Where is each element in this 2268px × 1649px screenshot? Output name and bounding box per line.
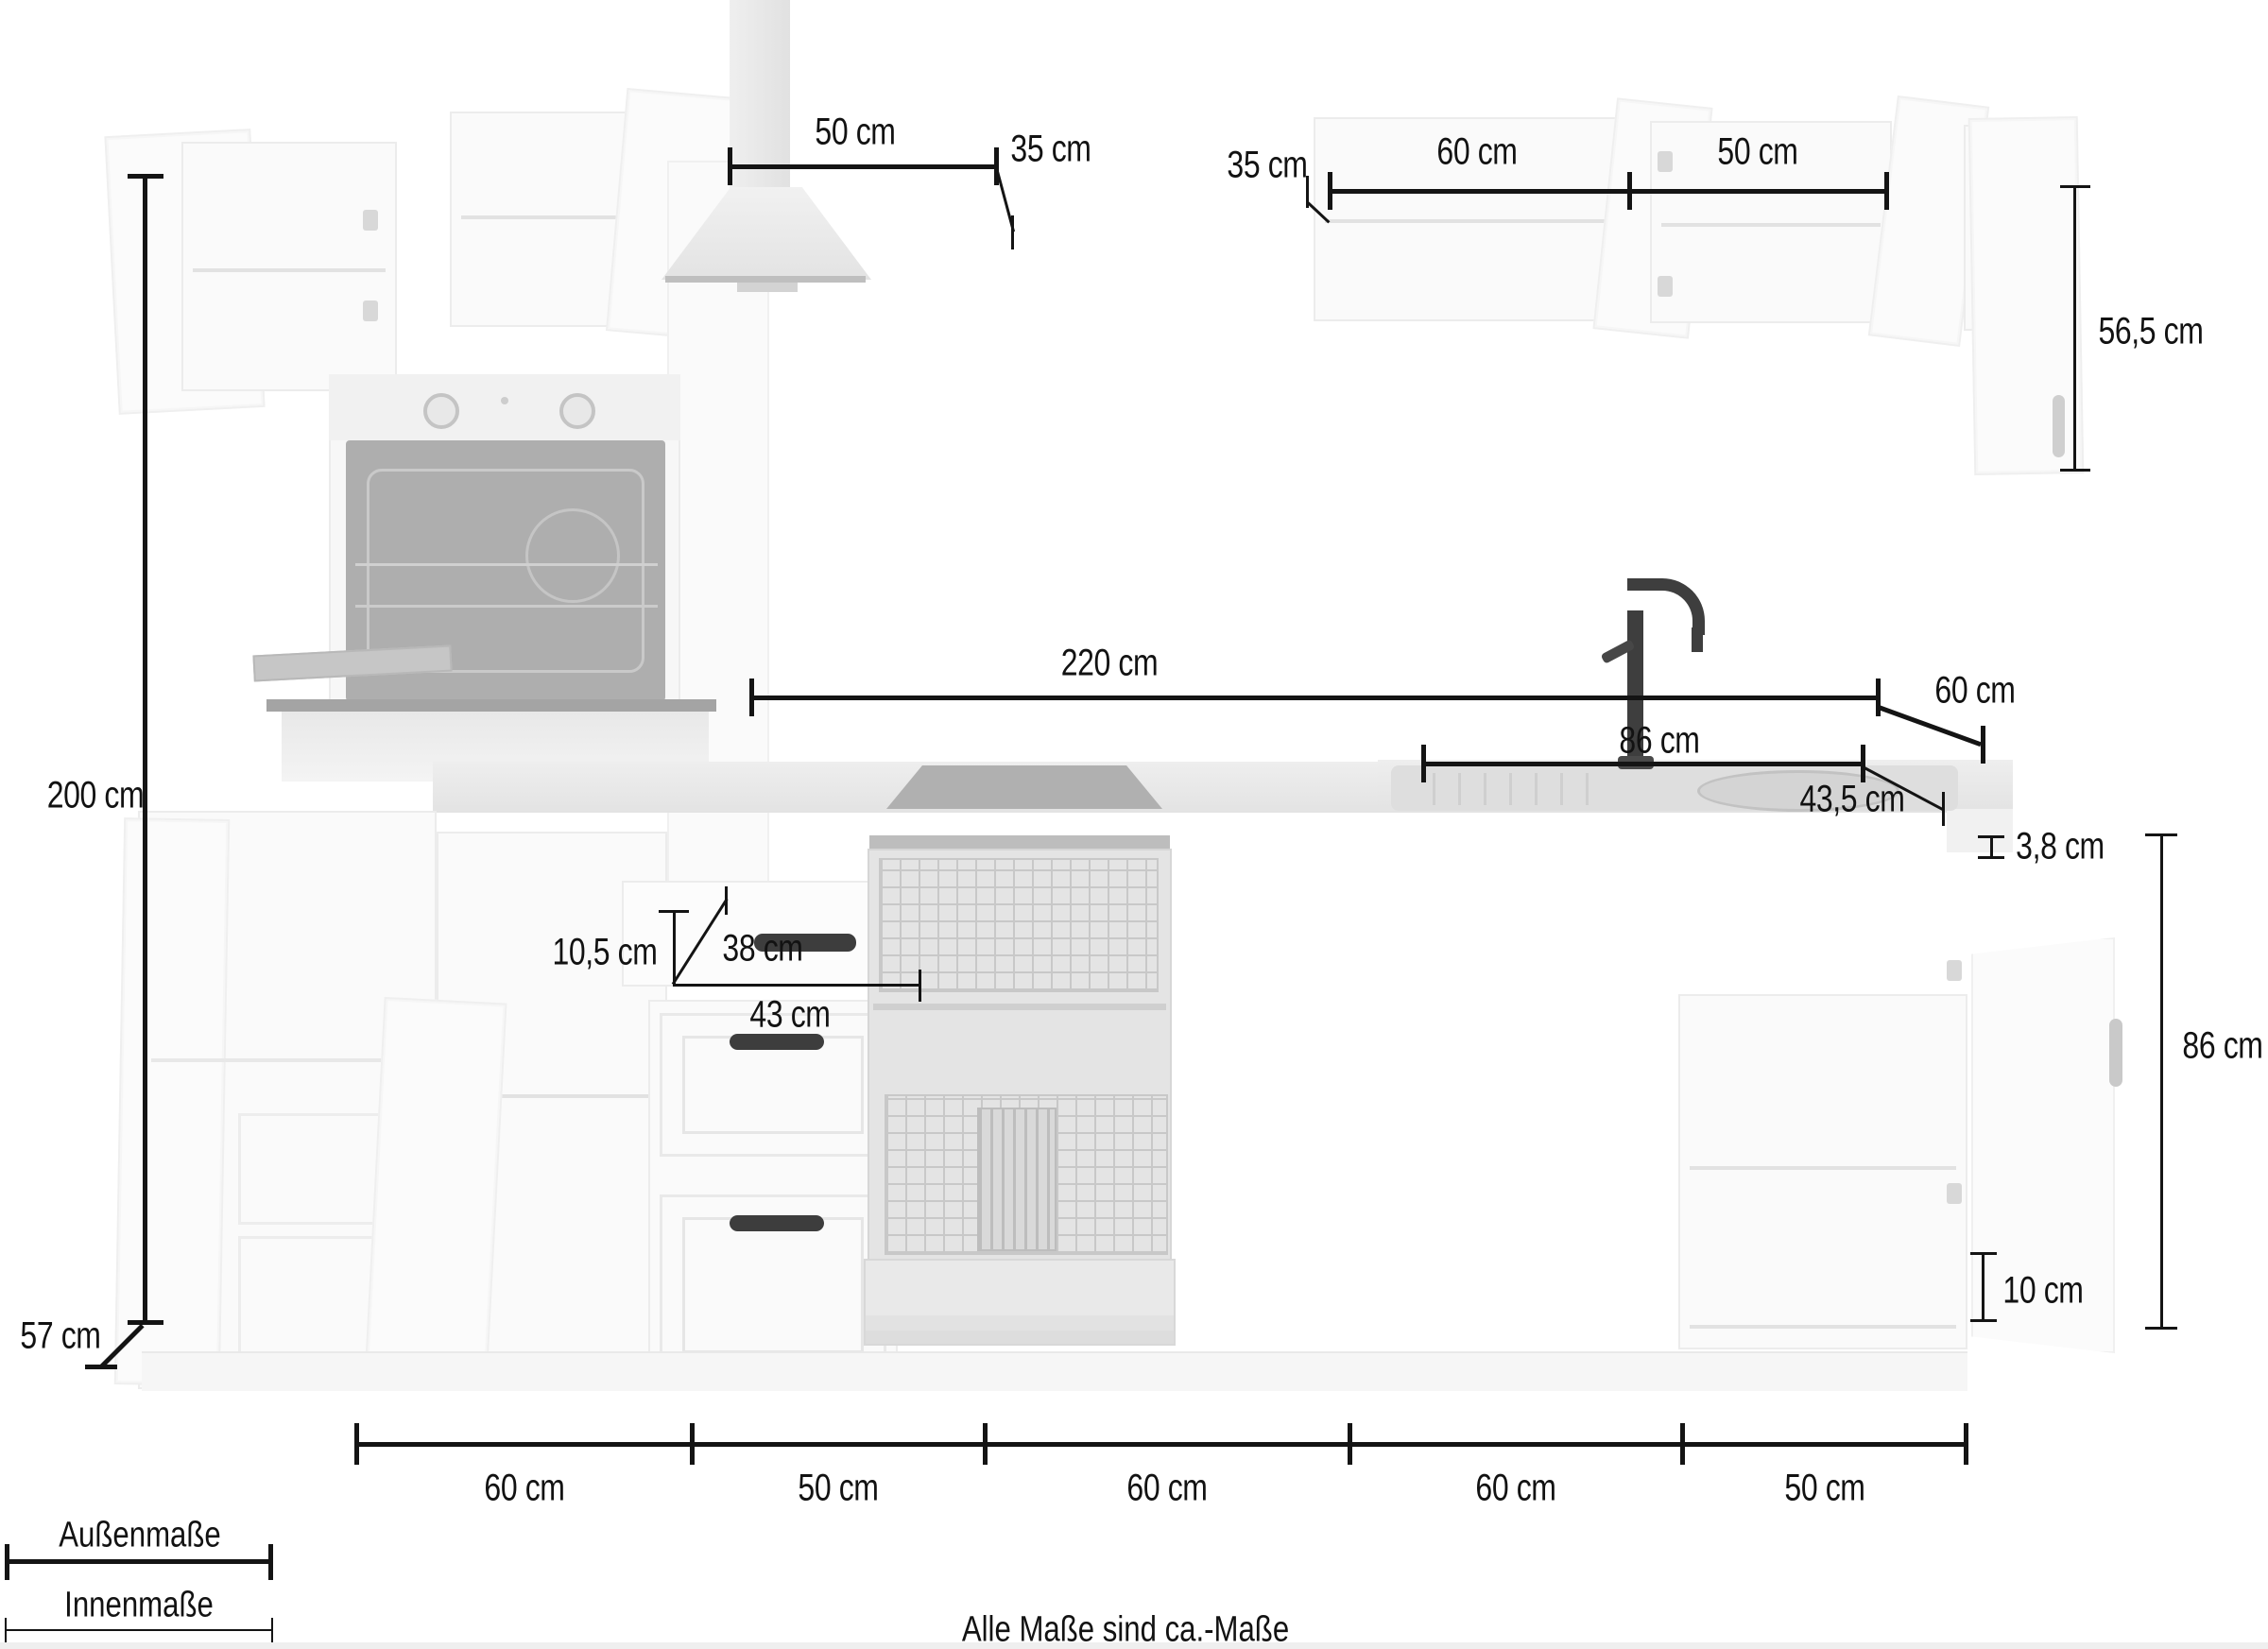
dim-label-cabinet-depth: 57 cm xyxy=(20,1315,100,1358)
dishwasher-cutlery-basket xyxy=(977,1108,1057,1251)
dim-tick xyxy=(1978,856,2004,859)
dim-label-worktop-length: 220 cm xyxy=(1061,643,1159,685)
door-hinge xyxy=(1658,151,1673,172)
range-hood-filter xyxy=(737,283,798,292)
dim-tick xyxy=(1328,172,1332,210)
legend-outer-line xyxy=(5,1559,273,1564)
door-hinge xyxy=(1947,1183,1962,1204)
dim-label-wall-left-width: 50 cm xyxy=(815,112,895,154)
footer-note: Alle Maße sind ca.-Maße xyxy=(962,1610,1289,1649)
wall-cabinet-60-right-shelf xyxy=(1325,219,1637,223)
dishwasher-rail xyxy=(873,1004,1166,1010)
dim-tick xyxy=(749,678,754,716)
dim-tick xyxy=(919,970,921,1002)
legend-tick xyxy=(268,1544,273,1580)
wall-cabinet-50-right-shelf xyxy=(1661,223,1881,227)
faucet-tip xyxy=(1692,627,1703,652)
oven-rack xyxy=(355,605,658,608)
sink-base-cabinet xyxy=(1678,994,1967,1349)
dim-label-wall-right-50: 50 cm xyxy=(1717,131,1797,174)
dim-tick xyxy=(1011,215,1014,249)
cooktop xyxy=(886,765,1162,809)
dim-tick xyxy=(690,1423,695,1465)
plinth xyxy=(142,1351,1967,1391)
sink-base-bottom xyxy=(1690,1325,1956,1329)
oven-indicator-light xyxy=(501,397,508,404)
dim-tick xyxy=(1421,745,1426,782)
wall-cabinet-far-right-door xyxy=(1968,116,2085,475)
door-hinge xyxy=(1947,960,1962,981)
dim-tick xyxy=(354,1423,359,1465)
dim-tick xyxy=(1627,172,1632,210)
door-handle xyxy=(2053,395,2065,457)
dim-tick xyxy=(128,174,163,179)
dim-label-hood-gap-right: 35 cm xyxy=(1227,145,1307,187)
dim-label-wall-cabinet-height: 56,5 cm xyxy=(2098,311,2203,353)
door-hinge xyxy=(1658,276,1673,297)
faucet-spout xyxy=(1627,578,1705,635)
dim-line-plinth-height xyxy=(1982,1254,1984,1321)
dim-tick xyxy=(2060,469,2090,472)
dim-label-base-width-5: 50 cm xyxy=(1784,1468,1864,1510)
dim-label-base-height: 86 cm xyxy=(2182,1025,2262,1068)
dim-label-sink-span: 86 cm xyxy=(1619,720,1699,763)
dim-tick xyxy=(1348,1423,1352,1465)
dim-tick xyxy=(1970,1252,1997,1255)
oven-door-edge xyxy=(266,699,716,712)
legend-tick xyxy=(5,1618,7,1642)
drawer-front-panel xyxy=(682,1036,864,1134)
oven-fan xyxy=(525,508,620,603)
dim-line-drawer-inner-width xyxy=(673,984,920,987)
dim-tick xyxy=(1978,835,2004,838)
door-hinge xyxy=(363,210,378,231)
dim-label-base-width-3: 60 cm xyxy=(1126,1468,1207,1510)
dim-tick xyxy=(2145,833,2177,836)
dim-line-wall-left-width xyxy=(728,164,999,169)
dim-line-worktop-thickness xyxy=(1990,837,1993,858)
dim-label-total-height: 200 cm xyxy=(47,775,145,817)
drawer-front-panel xyxy=(682,1217,864,1353)
dim-line-total-height xyxy=(143,174,147,1325)
dishwasher-door-open xyxy=(864,1259,1176,1346)
dim-label-wall-right-60: 60 cm xyxy=(1436,131,1517,174)
sink-drainboard xyxy=(1410,773,1608,805)
wall-cabinet-left-shelf xyxy=(193,268,386,272)
worktop-edge xyxy=(1947,809,2013,852)
dim-line-wall-cabinet-height xyxy=(2073,187,2076,471)
dim-tick xyxy=(1884,172,1889,210)
legend-outer-label: Außenmaße xyxy=(59,1516,220,1556)
oven-rack xyxy=(355,563,658,566)
sink-base-shelf xyxy=(1690,1166,1956,1170)
dishwasher-top-edge xyxy=(869,835,1170,849)
dim-label-worktop-depth: 60 cm xyxy=(1934,670,2015,713)
fridge-door-open xyxy=(114,817,230,1386)
dim-tick xyxy=(2060,185,2090,188)
dim-tick xyxy=(1981,726,1985,764)
dim-tick xyxy=(1970,1319,1997,1322)
dim-label-plinth-height: 10 cm xyxy=(2002,1270,2083,1313)
legend-tick xyxy=(5,1544,9,1580)
oven-knob xyxy=(423,393,459,429)
legend-inner-label: Innenmaße xyxy=(64,1586,214,1626)
dim-label-hood-gap-left: 35 cm xyxy=(1010,129,1091,171)
legend-tick xyxy=(271,1618,273,1642)
range-hood-chimney xyxy=(730,0,790,189)
dim-tick xyxy=(128,1320,163,1325)
dim-tick xyxy=(85,1365,117,1369)
dim-label-base-width-2: 50 cm xyxy=(798,1468,878,1510)
dim-label-worktop-thickness: 3,8 cm xyxy=(2016,826,2105,868)
door-hinge xyxy=(363,301,378,321)
dim-line-base-height xyxy=(2160,835,2163,1329)
kitchen-dimension-diagram: 50 cm 35 cm 35 cm 60 cm 50 cm 56,5 cm 20… xyxy=(0,0,2268,1649)
dim-line-worktop-length xyxy=(749,696,1881,700)
dim-tick xyxy=(1964,1423,1968,1465)
dim-tick xyxy=(2145,1327,2177,1330)
oven-knob xyxy=(559,393,595,429)
dim-line-sink-span xyxy=(1421,762,1865,766)
dim-label-base-width-1: 60 cm xyxy=(484,1468,564,1510)
legend-inner-line xyxy=(5,1629,273,1631)
dim-tick xyxy=(1680,1423,1685,1465)
dim-label-sink-bowl: 43,5 cm xyxy=(1799,779,1904,821)
drawer-handle xyxy=(730,1215,824,1231)
range-hood-base xyxy=(665,276,866,283)
drawer-handle xyxy=(730,1034,824,1050)
dim-tick xyxy=(1861,745,1865,782)
dim-label-drawer-front-height: 10,5 cm xyxy=(552,932,657,974)
dim-tick xyxy=(1942,792,1945,826)
dim-label-base-width-4: 60 cm xyxy=(1475,1468,1555,1510)
dim-label-drawer-inner-depth: 38 cm xyxy=(722,928,802,971)
base-cabinet-door-open xyxy=(365,997,507,1384)
dim-label-drawer-inner-width: 43 cm xyxy=(749,994,830,1037)
dim-tick xyxy=(983,1423,988,1465)
dim-tick xyxy=(728,147,732,185)
wall-cabinet-left xyxy=(181,142,397,391)
dim-line-base-widths xyxy=(354,1442,1968,1447)
oven-control-panel xyxy=(329,374,680,440)
dim-tick xyxy=(1876,678,1881,716)
door-handle xyxy=(2109,1019,2122,1087)
dim-line-drawer-front-height xyxy=(673,910,676,986)
dim-line-wall-right-widths xyxy=(1328,189,1889,194)
dim-tick xyxy=(725,886,728,915)
